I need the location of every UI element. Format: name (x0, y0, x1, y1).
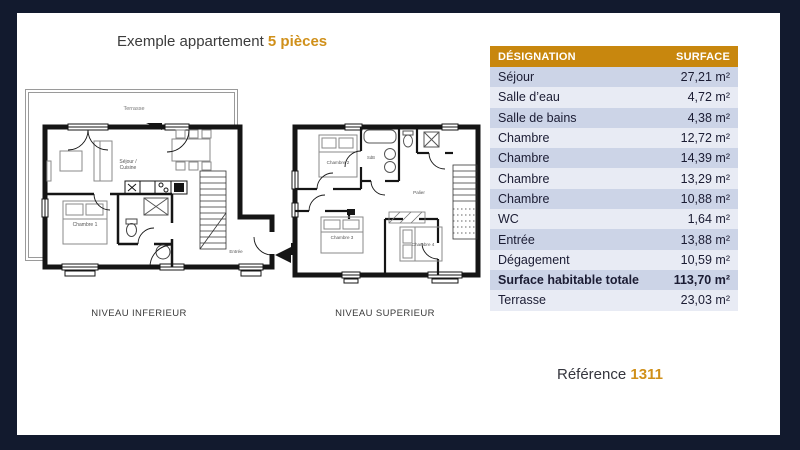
floorplan-lower: Terrasse (22, 77, 294, 289)
page-title-prefix: Exemple appartement (117, 33, 264, 50)
floorplan-lower-drawing: Terrasse (22, 77, 294, 289)
floorplan-upper-drawing: Chambre 2 Chambre 3 Chambre 4 Palier SdB (291, 123, 483, 287)
designation-cell: Salle de bains (490, 108, 655, 128)
table-row: Salle d’eau4,72 m² (490, 87, 738, 107)
designation-cell: Entrée (490, 229, 655, 249)
column-surface: SURFACE (655, 46, 738, 67)
table-row: Terrasse23,03 m² (490, 290, 738, 310)
table-row: Dégagement10,59 m² (490, 250, 738, 270)
surface-cell: 4,72 m² (655, 87, 738, 107)
surface-cell: 12,72 m² (655, 128, 738, 148)
reference: Référence 1311 (557, 366, 663, 383)
table-header-row: DÉSIGNATION SURFACE (490, 46, 738, 67)
reference-value: 1311 (630, 366, 663, 383)
caption-lower-level: NIVEAU INFERIEUR (39, 308, 239, 319)
designation-cell: Séjour (490, 67, 655, 87)
room-label-terrasse: Terrasse (123, 106, 144, 112)
page-title: Exemple appartement 5 pièces (117, 33, 327, 50)
room-label-sejour-2: Cuisine (120, 165, 137, 171)
surface-cell: 13,29 m² (655, 168, 738, 188)
room-label-entree: Entrée (229, 249, 243, 254)
caption-upper-level: NIVEAU SUPERIEUR (285, 308, 485, 319)
table-row: WC1,64 m² (490, 209, 738, 229)
slide-content: Exemple appartement 5 pièces Terrasse (17, 13, 780, 435)
page-title-highlight: 5 pièces (268, 33, 327, 50)
surface-cell: 14,39 m² (655, 148, 738, 168)
table-row: Chambre10,88 m² (490, 189, 738, 209)
table-row: Salle de bains4,38 m² (490, 108, 738, 128)
table-row: Séjour27,21 m² (490, 67, 738, 87)
surface-cell: 10,88 m² (655, 189, 738, 209)
designation-cell: Chambre (490, 189, 655, 209)
room-label-chambre2: Chambre 2 (327, 160, 350, 165)
floorplan-upper: Chambre 2 Chambre 3 Chambre 4 Palier SdB (291, 123, 483, 287)
table-row: Chambre12,72 m² (490, 128, 738, 148)
table-row: Entrée13,88 m² (490, 229, 738, 249)
entrance-arrow-icon (275, 247, 291, 263)
surface-cell: 27,21 m² (655, 67, 738, 87)
surface-cell: 4,38 m² (655, 108, 738, 128)
slide-canvas: Exemple appartement 5 pièces Terrasse (0, 0, 800, 450)
room-label-sdb: SdB (367, 155, 375, 160)
surface-cell: 10,59 m² (655, 250, 738, 270)
designation-cell: Dégagement (490, 250, 655, 270)
designation-cell: Terrasse (490, 290, 655, 310)
designation-cell: Chambre (490, 168, 655, 188)
room-label-chambre4: Chambre 4 (412, 242, 435, 247)
designation-cell: Chambre (490, 128, 655, 148)
surface-cell: 23,03 m² (655, 290, 738, 310)
surface-table: DÉSIGNATION SURFACE Séjour27,21 m² Salle… (490, 46, 738, 311)
reference-label: Référence (557, 366, 626, 383)
oven (174, 183, 184, 192)
room-label-chambre1: Chambre 1 (73, 222, 98, 228)
room-label-chambre3: Chambre 3 (331, 235, 354, 240)
column-designation: DÉSIGNATION (490, 46, 655, 67)
designation-cell: Salle d’eau (490, 87, 655, 107)
surface-cell: 1,64 m² (655, 209, 738, 229)
designation-cell: Chambre (490, 148, 655, 168)
room-label-palier: Palier (413, 190, 425, 195)
designation-cell: WC (490, 209, 655, 229)
table-row: Chambre13,29 m² (490, 168, 738, 188)
surface-cell: 113,70 m² (655, 270, 738, 290)
table-row: Chambre14,39 m² (490, 148, 738, 168)
designation-cell: Surface habitable totale (490, 270, 655, 290)
surface-cell: 13,88 m² (655, 229, 738, 249)
table-row-total: Surface habitable totale113,70 m² (490, 270, 738, 290)
